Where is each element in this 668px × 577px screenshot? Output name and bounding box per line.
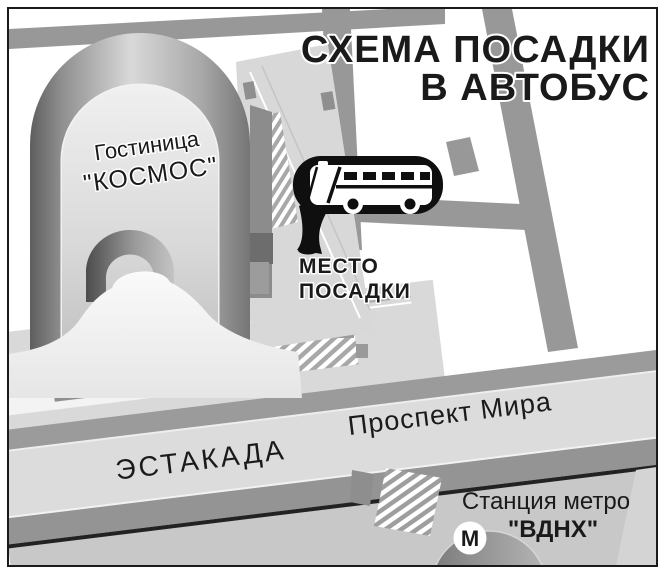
boarding-scheme-map: ЭСТАКАДА Проспект Мира — [0, 0, 668, 577]
metro-icon: М — [454, 522, 487, 555]
title-line2: В АВТОБУС — [420, 67, 650, 109]
metro-logo-letter: М — [461, 526, 479, 551]
boarding-line2: ПОСАДКИ — [299, 280, 411, 303]
crosswalk-metro — [374, 468, 442, 536]
boarding-line1: МЕСТО — [299, 255, 379, 278]
metro-station-label-line1: Станция метро — [462, 488, 630, 515]
map-canvas: ЭСТАКАДА Проспект Мира — [0, 0, 668, 577]
metro-station-label-line2: "ВДНХ" — [508, 516, 598, 543]
title-line1: СХЕМА ПОСАДКИ — [301, 29, 650, 71]
